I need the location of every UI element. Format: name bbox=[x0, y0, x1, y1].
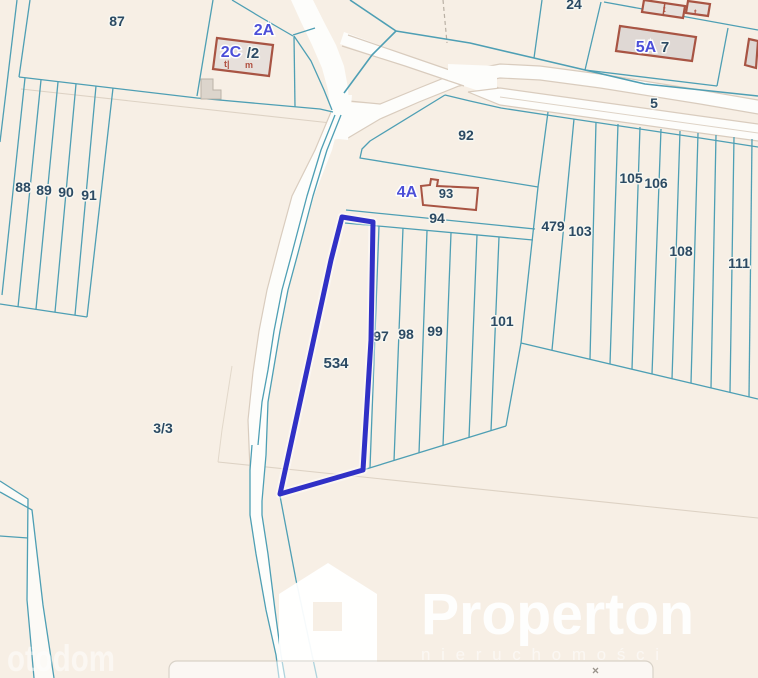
svg-text:87: 87 bbox=[109, 13, 125, 29]
svg-text:98: 98 bbox=[398, 326, 414, 342]
svg-text:91: 91 bbox=[81, 187, 97, 203]
svg-text:Properton: Properton bbox=[421, 582, 694, 647]
svg-text:t: t bbox=[694, 8, 697, 17]
svg-text:24: 24 bbox=[566, 0, 582, 12]
svg-text:106: 106 bbox=[644, 175, 668, 191]
svg-text:111: 111 bbox=[728, 255, 750, 271]
svg-text:99: 99 bbox=[427, 323, 443, 339]
svg-text:5: 5 bbox=[650, 95, 658, 111]
svg-text:103: 103 bbox=[568, 223, 592, 239]
svg-text:534: 534 bbox=[323, 355, 349, 372]
svg-text:t: t bbox=[663, 5, 666, 14]
svg-text:105: 105 bbox=[619, 170, 643, 186]
svg-text:7: 7 bbox=[661, 39, 669, 56]
svg-text:4A: 4A bbox=[397, 184, 418, 201]
svg-text:3/3: 3/3 bbox=[153, 420, 173, 436]
svg-text:90: 90 bbox=[58, 184, 74, 200]
svg-text:2A: 2A bbox=[254, 22, 275, 39]
svg-text:101: 101 bbox=[490, 313, 514, 329]
svg-text:m: m bbox=[245, 60, 253, 70]
svg-text:otodom: otodom bbox=[7, 638, 115, 678]
svg-text:92: 92 bbox=[458, 127, 474, 143]
svg-text:479: 479 bbox=[541, 218, 565, 234]
svg-text:5A: 5A bbox=[636, 39, 657, 56]
svg-text:93: 93 bbox=[439, 186, 453, 201]
svg-text:89: 89 bbox=[36, 182, 52, 198]
svg-text:88: 88 bbox=[15, 179, 31, 195]
svg-text:108: 108 bbox=[669, 243, 693, 259]
svg-text:t|: t| bbox=[224, 59, 230, 69]
svg-text:94: 94 bbox=[429, 210, 445, 226]
